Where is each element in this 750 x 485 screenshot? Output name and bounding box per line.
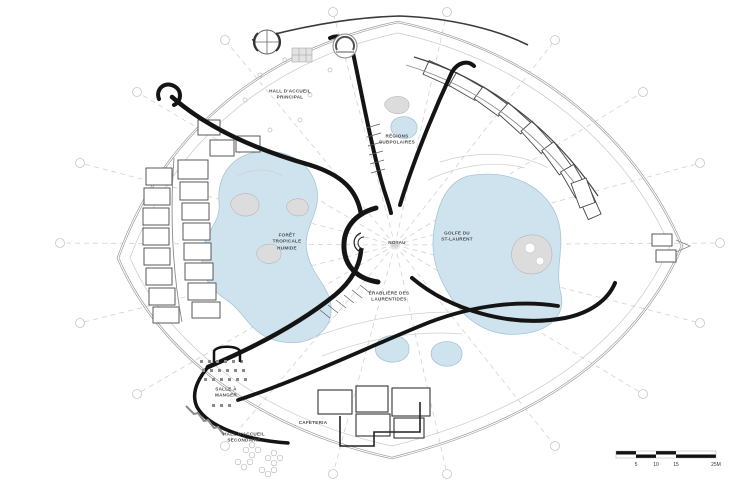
zone-label-regions-subpolaires: RÉGIONS SUBPOLAIRES: [379, 134, 415, 147]
secondary-hall-ramp: [186, 406, 224, 435]
stair-tower-circle: [254, 30, 280, 54]
gulf-island: [512, 235, 552, 274]
scale-tick-25: 25M: [711, 462, 721, 468]
floor-plan: 5 10 15 25M HALL D'ACCUEIL PRINCIPAL RÉG…: [0, 0, 750, 485]
scale-tick-15: 15: [673, 462, 679, 468]
floor-plan-drawing: 5 10 15 25M: [0, 0, 750, 485]
zone-label-cafeteria: CAFETERIA: [299, 420, 328, 426]
rooms-east: [652, 234, 690, 262]
zone-label-hall-principal: HALL D'ACCUEIL PRINCIPAL: [269, 89, 311, 102]
scale-tick-10: 10: [653, 462, 659, 468]
dome-structure-circle: [333, 34, 357, 58]
planting-clusters: [235, 442, 283, 477]
roof-grid-panel: [292, 48, 312, 62]
zone-label-golfe-st-laurent: GOLFE DU ST-LAURENT: [441, 231, 473, 244]
scale-bar: 5 10 15 25M: [616, 451, 721, 468]
rooms-south: [318, 386, 430, 446]
zone-label-salle-a-manger: SALLE À MANGER: [215, 387, 237, 400]
zone-label-erabliere: ÉRABLIÈRE DES LAURENTIDES: [369, 291, 410, 304]
zone-label-noyau: NOYAU: [388, 240, 405, 246]
zone-label-foret-tropicale: FORÊT TROPICALE HUMIDE: [273, 232, 302, 251]
scale-tick-5: 5: [635, 462, 638, 468]
pond-2: [431, 342, 462, 367]
zone-label-hall-secondaire: HALL D'ACCUEIL SECONDAIRE: [223, 432, 265, 445]
